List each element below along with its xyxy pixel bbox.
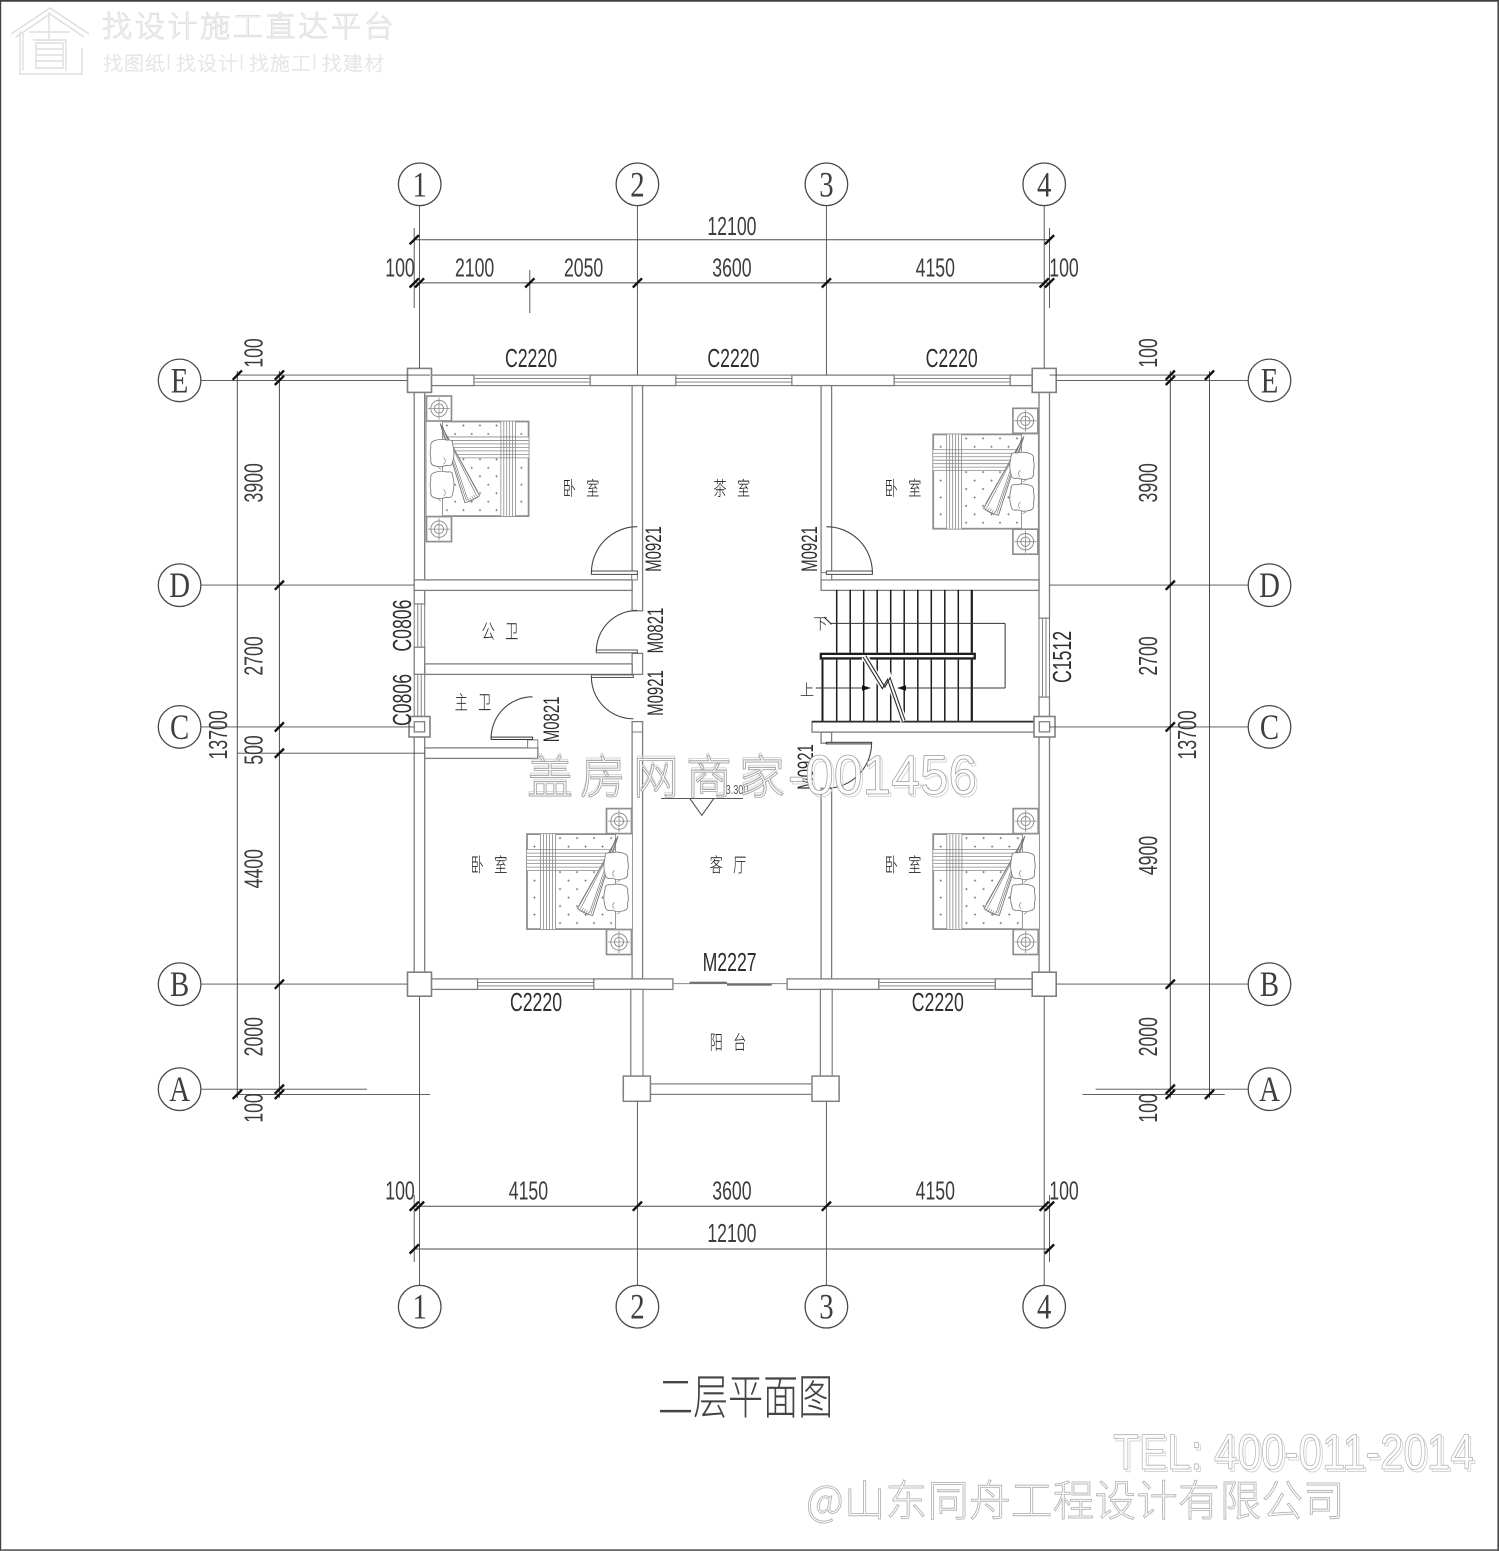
svg-text:3600: 3600 [712,1176,751,1205]
svg-text:100: 100 [385,253,414,282]
svg-text:4900: 4900 [1134,836,1163,875]
svg-text:C2220: C2220 [707,344,759,373]
svg-text:M0921: M0921 [797,526,822,572]
svg-text:B: B [1260,965,1279,1005]
svg-text:D: D [169,566,190,606]
svg-text:3900: 3900 [1134,463,1163,502]
svg-text:100: 100 [1049,253,1078,282]
svg-text:M0821: M0821 [539,697,564,743]
svg-text:4150: 4150 [916,1176,955,1205]
svg-text:1: 1 [413,1288,427,1328]
svg-text:D: D [1259,566,1280,606]
svg-text:A: A [1259,1070,1280,1110]
svg-text:2000: 2000 [1134,1017,1163,1056]
svg-text:3: 3 [819,165,833,205]
svg-text:13700: 13700 [1173,710,1202,759]
svg-text:M0921: M0921 [641,526,666,572]
svg-text:1: 1 [413,165,427,205]
svg-text:E: E [1261,361,1279,401]
svg-text:M0821: M0821 [643,608,668,654]
svg-text:2: 2 [630,1288,644,1328]
svg-text:12100: 12100 [707,212,756,241]
svg-text:100: 100 [239,338,268,367]
svg-text:2000: 2000 [239,1017,268,1056]
svg-text:2700: 2700 [1134,636,1163,675]
svg-text:100: 100 [239,1093,268,1122]
svg-text:2050: 2050 [564,253,603,282]
svg-text:A: A [169,1070,190,1110]
svg-text:500: 500 [239,735,268,764]
svg-text:2: 2 [630,165,644,205]
svg-text:2700: 2700 [239,636,268,675]
svg-text:4150: 4150 [509,1176,548,1205]
svg-text:12100: 12100 [707,1219,756,1248]
svg-text:4150: 4150 [916,253,955,282]
svg-text:C1512: C1512 [1048,631,1077,683]
svg-text:B: B [170,965,189,1005]
svg-text:M0921: M0921 [643,670,668,716]
svg-text:M2227: M2227 [703,948,757,977]
svg-text:C: C [1260,708,1279,748]
svg-text:4400: 4400 [239,849,268,888]
svg-text:100: 100 [385,1176,414,1205]
svg-text:C2220: C2220 [510,988,562,1017]
svg-text:C2220: C2220 [926,344,978,373]
svg-text:E: E [171,361,189,401]
svg-text:TEL: 400-011-2014: TEL: 400-011-2014 [1113,1424,1474,1480]
svg-text:3: 3 [819,1288,833,1328]
svg-text:4: 4 [1037,165,1051,205]
svg-text:3600: 3600 [712,253,751,282]
svg-text:-001456: -001456 [788,744,977,806]
svg-text:4: 4 [1037,1288,1051,1328]
svg-text:C2220: C2220 [912,988,964,1017]
svg-text:13700: 13700 [204,710,233,759]
svg-text:100: 100 [1134,1093,1163,1122]
svg-text:3900: 3900 [239,463,268,502]
svg-text:C: C [170,708,189,748]
svg-text:C0806: C0806 [388,674,417,726]
svg-text:100: 100 [1134,338,1163,367]
svg-text:C0806: C0806 [388,600,417,652]
svg-text:2100: 2100 [455,253,494,282]
svg-text:100: 100 [1049,1176,1078,1205]
svg-text:C2220: C2220 [505,344,557,373]
